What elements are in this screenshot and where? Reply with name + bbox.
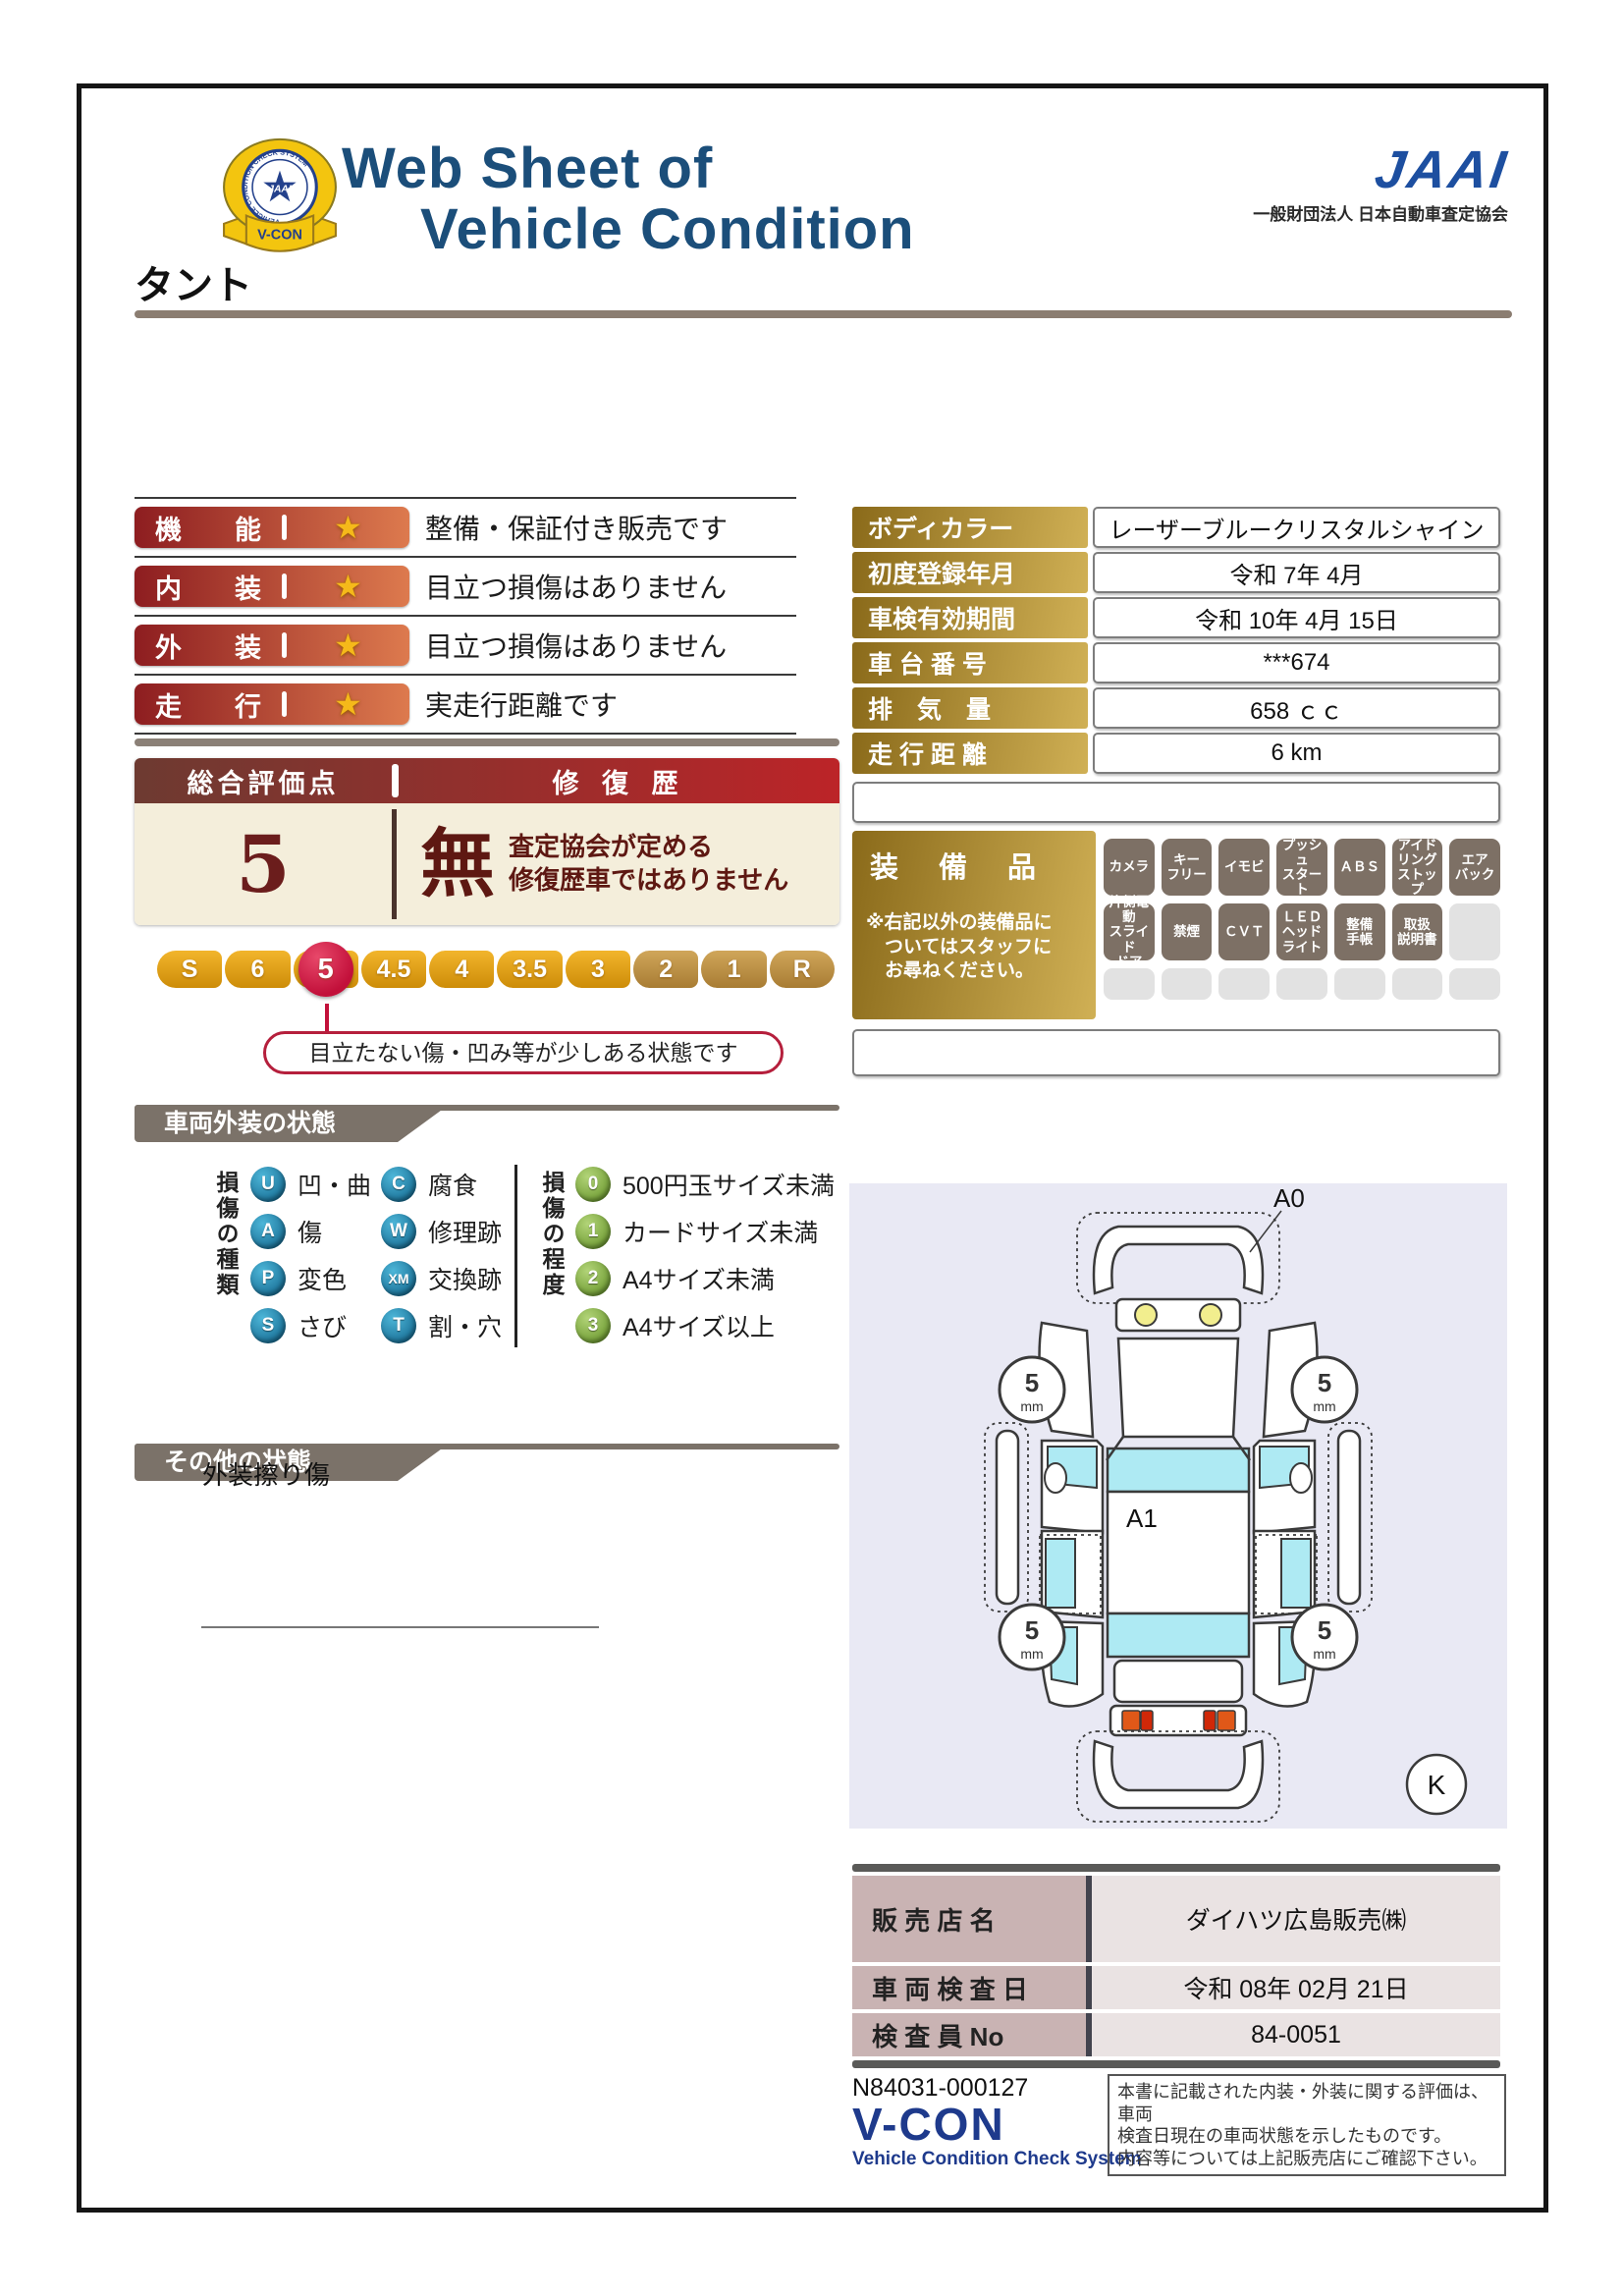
rating-description: 実走行距離です xyxy=(425,684,618,724)
exterior-section-title: 車両外装の状態 xyxy=(135,1105,398,1142)
equipment-badge: イモビ xyxy=(1218,839,1270,896)
legend-row: C腐食 xyxy=(381,1161,502,1208)
tread-depth-value: 5 xyxy=(1025,1615,1039,1645)
star-icon: ★ xyxy=(287,509,409,546)
grade-segment: 3 xyxy=(563,951,630,988)
damage-degree-2-icon: 2 xyxy=(575,1261,611,1296)
equipment-badge: 禁煙 xyxy=(1162,903,1213,960)
damage-kind-p-icon: P xyxy=(250,1261,286,1296)
equipment-badge: ＬＥＤ ヘッド ライト xyxy=(1276,903,1327,960)
dealer-rows: 販 売 店 名ダイハツ広島販売㈱車 両 検 査 日令和 08年 02月 21日検… xyxy=(852,1876,1500,2056)
page-title-line1: Web Sheet of xyxy=(342,136,713,201)
overall-body: 5 無 査定協会が定める 修復歴車ではありません xyxy=(135,803,839,925)
dealer-row-label: 検 査 員 No xyxy=(852,2013,1086,2056)
grade-segment: 4.5 xyxy=(358,951,426,988)
detail-value: レーザーブルークリスタルシャイン xyxy=(1093,507,1500,548)
legend-label: A4サイズ未満 xyxy=(622,1261,775,1296)
jaai-organization: 一般財団法人 日本自動車査定協会 xyxy=(1139,200,1508,225)
tread-depth-unit: mm xyxy=(1313,1646,1335,1662)
star-icon: ★ xyxy=(287,627,409,664)
page-title-line2: Vehicle Condition xyxy=(420,196,915,262)
dealer-row-value: ダイハツ広島販売㈱ xyxy=(1092,1876,1500,1962)
equipment-empty-row xyxy=(852,1029,1500,1076)
equipment-note: ※右記以外の装備品に ついてはスタッフに お尋ねください。 xyxy=(852,886,1096,984)
repair-note: 査定協会が定める 修復歴車ではありません xyxy=(509,831,788,898)
equipment-badge-empty xyxy=(1449,968,1500,1000)
rating-row: 走 行★実走行距離です xyxy=(135,674,796,735)
legend-row: A傷 xyxy=(250,1208,371,1255)
rating-description: 目立つ損傷はありません xyxy=(425,567,727,606)
exterior-section-banner: 車両外装の状態 xyxy=(135,1105,839,1142)
detail-label: 車検有効期間 xyxy=(852,597,1088,638)
equipment-badge-empty xyxy=(1449,903,1500,960)
equipment-badge: キー フリー xyxy=(1162,839,1213,896)
overall-header: 総合評価点 修 復 歴 xyxy=(135,758,839,803)
tread-depth-unit: mm xyxy=(1020,1646,1043,1662)
damage-marker-a0: A0 xyxy=(1273,1183,1305,1213)
equipment-badge: 整備 手帳 xyxy=(1334,903,1385,960)
detail-label: 走 行 距 離 xyxy=(852,733,1088,774)
equipment-badge: エア バック xyxy=(1449,839,1500,896)
grade-segment: 3.5 xyxy=(494,951,562,988)
grade-scale: S654.543.5321R xyxy=(157,951,835,988)
detail-row: 車検有効期間令和 10年 4月 15日 xyxy=(852,597,1500,638)
legend-label: さび xyxy=(298,1308,347,1343)
damage-kind-xm-icon: XM xyxy=(381,1261,416,1296)
legend-label: カードサイズ未満 xyxy=(622,1214,818,1249)
tread-depth-unit: mm xyxy=(1313,1398,1335,1414)
damage-kinds-column1: U凹・曲A傷P変色Sさび xyxy=(250,1161,371,1349)
equipment-badge-empty xyxy=(1162,968,1213,1000)
detail-value: 令和 10年 4月 15日 xyxy=(1093,597,1500,638)
dealer-row-label: 車 両 検 査 日 xyxy=(852,1966,1086,2009)
rating-bar: 外 装★ xyxy=(135,625,409,666)
star-icon: ★ xyxy=(287,568,409,605)
ratings-list: 機 能★整備・保証付き販売です内 装★目立つ損傷はありません外 装★目立つ損傷は… xyxy=(135,497,796,735)
badge-ribbon-text: V-CON xyxy=(257,227,302,243)
dealer-table-bottom-bar xyxy=(852,2060,1500,2068)
repair-status-value: 無 xyxy=(420,827,495,902)
detail-row: 排 気 量658 ｃｃ xyxy=(852,687,1500,729)
grade-segment: R xyxy=(767,951,835,988)
equipment-title: 装 備 品 xyxy=(852,831,1096,886)
legend-row: W修理跡 xyxy=(381,1208,502,1255)
rating-bar: 内 装★ xyxy=(135,566,409,607)
equipment-panel: 装 備 品 ※右記以外の装備品に ついてはスタッフに お尋ねください。 カメラキ… xyxy=(852,831,1500,1019)
star-icon: ★ xyxy=(287,685,409,723)
detail-label: 排 気 量 xyxy=(852,687,1088,729)
details-empty-row xyxy=(852,782,1500,823)
overall-score-box: 総合評価点 修 復 歴 5 無 査定協会が定める 修復歴車ではありません xyxy=(135,758,839,925)
detail-value: 6 km xyxy=(1093,733,1500,774)
rating-description: 目立つ損傷はありません xyxy=(425,626,727,665)
grade-callout-connector xyxy=(325,1004,329,1031)
equipment-badge: 片側電動 スライド ドア xyxy=(1104,903,1155,960)
other-condition-note: 外装擦り傷 xyxy=(202,1455,330,1492)
dealer-row-value: 84-0051 xyxy=(1092,2013,1500,2056)
jaai-wordmark: JAAI xyxy=(1135,143,1512,196)
detail-label: 車 台 番 号 xyxy=(852,642,1088,683)
legend-row: 3A4サイズ以上 xyxy=(575,1302,835,1349)
damage-degrees-column: 0500円玉サイズ未満1カードサイズ未満2A4サイズ未満3A4サイズ以上 xyxy=(575,1161,835,1349)
grade-callout: 目立たない傷・凹み等が少しある状態です xyxy=(263,1031,784,1074)
selected-grade-marker: 5 xyxy=(298,942,353,997)
legend-row: Sさび xyxy=(250,1302,371,1349)
repair-history-label: 修 復 歴 xyxy=(399,758,839,803)
damage-degree-label: 損傷の程度 xyxy=(535,1171,568,1339)
equipment-gold-panel: 装 備 品 ※右記以外の装備品に ついてはスタッフに お尋ねください。 xyxy=(852,831,1096,1019)
car-damage-diagram: 5 mm 5 mm 5 mm 5 mm A0 A1 K xyxy=(849,1183,1507,1829)
banner-slant xyxy=(398,1105,449,1142)
legend-row: 1カードサイズ未満 xyxy=(575,1208,835,1255)
legend-divider xyxy=(514,1165,517,1347)
tread-depth-unit: mm xyxy=(1020,1398,1043,1414)
equipment-badge: ＣＶＴ xyxy=(1218,903,1270,960)
rating-label: 内 装 xyxy=(135,568,282,606)
ratings-divider xyxy=(135,738,839,746)
detail-label: ボディカラー xyxy=(852,507,1088,548)
overall-score-label: 総合評価点 xyxy=(135,758,392,803)
damage-degree-1-icon: 1 xyxy=(575,1214,611,1249)
legend-label: 腐食 xyxy=(428,1167,477,1202)
detail-row: ボディカラーレーザーブルークリスタルシャイン xyxy=(852,507,1500,548)
equipment-badge-empty xyxy=(1218,968,1270,1000)
grade-segment: 4 xyxy=(426,951,494,988)
banner-slant xyxy=(398,1444,449,1481)
dealer-row-value: 令和 08年 02月 21日 xyxy=(1092,1966,1500,2009)
header-divider xyxy=(135,310,1512,318)
legend-label: 割・穴 xyxy=(428,1308,502,1343)
damage-marker-a1: A1 xyxy=(1126,1503,1158,1533)
legend-label: 傷 xyxy=(298,1214,322,1249)
detail-value: 令和 7年 4月 xyxy=(1093,552,1500,593)
equipment-grid: カメラキー フリーイモビプッシュ スタートＡＢＳアイド リング ストップエア バ… xyxy=(1104,839,1500,1000)
equipment-badge: 取扱 説明書 xyxy=(1392,903,1443,960)
badge-jaai-text: JAAI xyxy=(268,185,293,195)
legend-label: 修理跡 xyxy=(428,1214,502,1249)
legend-row: 2A4サイズ未満 xyxy=(575,1255,835,1302)
vcon-footer-subtitle: Vehicle Condition Check System xyxy=(852,2149,1142,2170)
damage-kind-w-icon: W xyxy=(381,1214,416,1249)
equipment-badge-empty xyxy=(1276,968,1327,1000)
detail-row: 車 台 番 号***674 xyxy=(852,642,1500,683)
car-diagram-svg: 5 mm 5 mm 5 mm 5 mm A0 A1 K xyxy=(849,1183,1507,1829)
dealer-row-label: 販 売 店 名 xyxy=(852,1876,1086,1962)
equipment-badge-empty xyxy=(1334,968,1385,1000)
equipment-badge-empty xyxy=(1392,968,1443,1000)
detail-value: ***674 xyxy=(1093,642,1500,683)
equipment-badge-empty xyxy=(1104,968,1155,1000)
rating-row: 内 装★目立つ損傷はありません xyxy=(135,556,796,615)
rating-bar: 機 能★ xyxy=(135,507,409,548)
dealer-row: 検 査 員 No84-0051 xyxy=(852,2013,1500,2056)
rating-label: 機 能 xyxy=(135,509,282,547)
rating-bar: 走 行★ xyxy=(135,683,409,725)
grade-segment: 1 xyxy=(698,951,766,988)
legend-label: 交換跡 xyxy=(428,1261,502,1296)
vcon-badge-icon: VEHICLE CONDITION CHECK SYSTEM ★ JAAI V-… xyxy=(222,137,338,263)
overall-header-divider xyxy=(392,764,399,797)
equipment-badge: アイド リング ストップ xyxy=(1392,839,1443,896)
rating-row: 機 能★整備・保証付き販売です xyxy=(135,497,796,556)
legend-row: T割・穴 xyxy=(381,1302,502,1349)
legend-row: P変色 xyxy=(250,1255,371,1302)
rating-description: 整備・保証付き販売です xyxy=(425,508,728,547)
damage-kind-t-icon: T xyxy=(381,1308,416,1343)
vehicle-condition-sheet: VEHICLE CONDITION CHECK SYSTEM ★ JAAI V-… xyxy=(0,0,1623,2296)
damage-kind-c-icon: C xyxy=(381,1167,416,1202)
legend-label: 500円玉サイズ未満 xyxy=(622,1167,835,1202)
dealer-row: 車 両 検 査 日令和 08年 02月 21日 xyxy=(852,1966,1500,2009)
rating-label: 外 装 xyxy=(135,627,282,665)
damage-kind-a-icon: A xyxy=(250,1214,286,1249)
damage-degree-3-icon: 3 xyxy=(575,1308,611,1343)
grade-segment: 2 xyxy=(630,951,698,988)
vehicle-name: タント xyxy=(135,253,252,310)
equipment-badge: プッシュ スタート xyxy=(1276,839,1327,896)
legend-label: 凹・曲 xyxy=(298,1167,371,1202)
grade-segment: S xyxy=(157,951,222,988)
grade-segment: 5 xyxy=(291,951,358,988)
vehicle-details-table: ボディカラーレーザーブルークリスタルシャイン初度登録年月令和 7年 4月車検有効… xyxy=(852,507,1500,778)
legend-row: XM交換跡 xyxy=(381,1255,502,1302)
vcon-badge-logo: VEHICLE CONDITION CHECK SYSTEM ★ JAAI V-… xyxy=(222,137,338,268)
detail-row: 初度登録年月令和 7年 4月 xyxy=(852,552,1500,593)
overall-score-value: 5 xyxy=(135,803,392,925)
tread-depth-value: 5 xyxy=(1025,1368,1039,1397)
damage-kind-label: 損傷の種類 xyxy=(209,1171,243,1339)
legend-row: U凹・曲 xyxy=(250,1161,371,1208)
legend-label: A4サイズ以上 xyxy=(622,1308,775,1343)
damage-degree-0-icon: 0 xyxy=(575,1167,611,1202)
tread-depth-value: 5 xyxy=(1318,1615,1331,1645)
footer-disclaimer: 本書に記載された内装・外装に関する評価は、車両 検査日現在の車両状態を示したもの… xyxy=(1108,2074,1506,2176)
rating-label: 走 行 xyxy=(135,685,282,724)
damage-kind-u-icon: U xyxy=(250,1167,286,1202)
notes-underline xyxy=(201,1626,599,1628)
dealer-row: 販 売 店 名ダイハツ広島販売㈱ xyxy=(852,1876,1500,1962)
rating-row: 外 装★目立つ損傷はありません xyxy=(135,615,796,674)
tread-depth-value: 5 xyxy=(1318,1368,1331,1397)
legend-label: 変色 xyxy=(298,1261,347,1296)
jaai-logo: JAAI 一般財団法人 日本自動車査定協会 xyxy=(1139,143,1508,225)
detail-value: 658 ｃｃ xyxy=(1093,687,1500,729)
damage-kinds-column2: C腐食W修理跡XM交換跡T割・穴 xyxy=(381,1161,502,1349)
vcon-footer-logo: V-CON xyxy=(852,2102,1005,2147)
dealer-table-top-bar xyxy=(852,1864,1500,1872)
detail-label: 初度登録年月 xyxy=(852,552,1088,593)
inspection-corner-mark: K xyxy=(1428,1770,1446,1800)
legend-row: 0500円玉サイズ未満 xyxy=(575,1161,835,1208)
dealer-table: 販 売 店 名ダイハツ広島販売㈱車 両 検 査 日令和 08年 02月 21日検… xyxy=(852,1864,1500,2068)
grade-segment: 6 xyxy=(222,951,290,988)
damage-kind-s-icon: S xyxy=(250,1308,286,1343)
detail-row: 走 行 距 離6 km xyxy=(852,733,1500,774)
equipment-badge: カメラ xyxy=(1104,839,1155,896)
equipment-badge: ＡＢＳ xyxy=(1334,839,1385,896)
